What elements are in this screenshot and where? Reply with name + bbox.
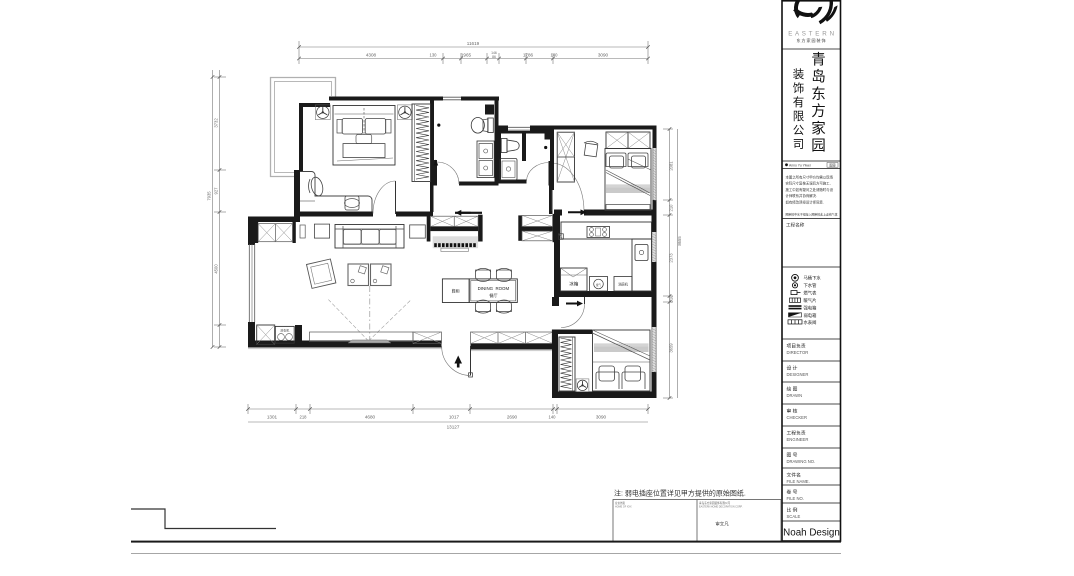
- svg-text:司: 司: [793, 139, 805, 151]
- svg-text:文件名: 文件名: [787, 472, 802, 479]
- svg-text:业主姓名: 业主姓名: [615, 501, 626, 505]
- svg-text:本图之所有尺寸甲方均需以现场: 本图之所有尺寸甲方均需以现场: [786, 175, 834, 180]
- svg-text:EASTERN HOME DECORATION CORP.: EASTERN HOME DECORATION CORP.: [699, 506, 743, 509]
- svg-text:东: 东: [811, 86, 826, 103]
- svg-text:11619: 11619: [467, 41, 480, 46]
- svg-text:140: 140: [549, 414, 557, 419]
- svg-text:DESIGNER: DESIGNER: [787, 372, 809, 377]
- svg-text:限: 限: [793, 110, 805, 123]
- svg-text:2690: 2690: [507, 414, 518, 419]
- svg-text:SCALE: SCALE: [787, 514, 801, 519]
- svg-text:青: 青: [811, 52, 826, 69]
- svg-text:装: 装: [793, 68, 805, 81]
- svg-text:13127: 13127: [447, 424, 460, 429]
- svg-text:DRAWN: DRAWN: [787, 393, 803, 398]
- svg-text:210: 210: [669, 204, 674, 212]
- svg-text:146: 146: [491, 51, 497, 55]
- svg-text:审 核: 审 核: [787, 408, 798, 415]
- svg-text:水表阀: 水表阀: [804, 319, 817, 326]
- svg-text:Anno Yu Yiwei: Anno Yu Yiwei: [789, 164, 811, 168]
- svg-text:1786: 1786: [523, 53, 534, 58]
- svg-text:东方家园装饰: 东方家园装饰: [797, 37, 827, 43]
- svg-text:2081: 2081: [669, 161, 674, 171]
- svg-text:公: 公: [793, 124, 805, 137]
- svg-text:图审: 图审: [829, 162, 835, 167]
- svg-text:927: 927: [214, 187, 219, 195]
- svg-text:家: 家: [811, 120, 826, 137]
- svg-text:青岛东方家园装饰有限公司: 青岛东方家园装饰有限公司: [699, 501, 731, 505]
- svg-text:洗衣机: 洗衣机: [280, 328, 289, 333]
- svg-text:方: 方: [811, 103, 826, 120]
- svg-text:冰箱: 冰箱: [569, 281, 579, 288]
- svg-text:CHECKER: CHECKER: [787, 415, 807, 420]
- svg-text:140: 140: [551, 53, 559, 58]
- svg-text:鞋柜: 鞋柜: [452, 288, 460, 294]
- svg-text:3090: 3090: [598, 53, 609, 58]
- svg-text:4500: 4500: [214, 264, 219, 274]
- svg-text:HOME OF XXX: HOME OF XXX: [615, 506, 632, 509]
- svg-text:如有修改须经设计师同意.: 如有修改须经设计师同意.: [786, 199, 824, 204]
- svg-text:比 例: 比 例: [787, 507, 798, 514]
- svg-text:130: 130: [430, 53, 438, 58]
- svg-text:DIRECTOR: DIRECTOR: [787, 350, 809, 355]
- svg-text:洗碗机: 洗碗机: [618, 282, 628, 287]
- svg-text:E A S T E R N: E A S T E R N: [788, 31, 834, 38]
- svg-text:暖气片: 暖气片: [804, 297, 817, 304]
- svg-text:岛: 岛: [811, 69, 826, 86]
- svg-text:1017: 1017: [449, 414, 460, 419]
- svg-text:饰: 饰: [793, 81, 805, 95]
- svg-text:3090: 3090: [596, 414, 607, 419]
- svg-text:7935: 7935: [206, 191, 211, 201]
- svg-text:计师联系并协商解决.: 计师联系并协商解决.: [786, 193, 818, 198]
- svg-text:218: 218: [300, 414, 308, 419]
- svg-text:下水管: 下水管: [804, 282, 818, 289]
- svg-text:注: 弱电插座位置详见甲方提供的原始图纸.: 注: 弱电插座位置详见甲方提供的原始图纸.: [614, 489, 746, 498]
- svg-text:强电箱: 强电箱: [804, 304, 818, 311]
- svg-text:86: 86: [492, 55, 496, 59]
- svg-text:1301: 1301: [267, 414, 278, 419]
- svg-text:煤气: 煤气: [596, 283, 602, 287]
- svg-text:卷 号: 卷 号: [787, 489, 798, 496]
- svg-text:工程负责: 工程负责: [787, 430, 806, 437]
- svg-text:弱电箱: 弱电箱: [804, 312, 818, 319]
- svg-text:有: 有: [793, 95, 805, 109]
- svg-text:4680: 4680: [365, 414, 376, 419]
- svg-text:810: 810: [669, 295, 674, 303]
- svg-text:园: 园: [811, 139, 826, 155]
- svg-text:ENGINEER: ENGINEER: [787, 437, 809, 442]
- svg-text:餐厅: 餐厅: [489, 292, 497, 299]
- svg-text:设 计: 设 计: [787, 365, 798, 372]
- svg-text:4308: 4308: [366, 53, 377, 58]
- svg-text:审文凡: 审文凡: [715, 521, 729, 528]
- svg-text:施工中如有疑问之处请随时与设: 施工中如有疑问之处请随时与设: [786, 187, 834, 192]
- svg-text:2373: 2373: [669, 253, 674, 263]
- svg-text:Noah Design: Noah Design: [783, 528, 840, 539]
- svg-text:3732: 3732: [214, 118, 219, 128]
- svg-text:DINING ROOM: DINING ROOM: [478, 286, 510, 291]
- svg-text:图 号: 图 号: [787, 453, 798, 459]
- svg-text:DRAWING NO.: DRAWING NO.: [787, 459, 816, 464]
- svg-text:FILE NO.: FILE NO.: [787, 496, 804, 501]
- svg-text:燃气表: 燃气表: [804, 290, 818, 297]
- svg-text:项目负责: 项目负责: [787, 343, 806, 350]
- svg-text:FILE NAME.: FILE NAME.: [787, 479, 810, 484]
- svg-text:绘 图: 绘 图: [787, 386, 798, 393]
- svg-text:图审核中水不得接入图审核此上虚线气体: 图审核中水不得接入图审核此上虚线气体: [786, 212, 838, 217]
- svg-text:马桶下水: 马桶下水: [804, 275, 822, 282]
- svg-text:3659: 3659: [669, 343, 674, 353]
- svg-text:实际尺寸复核无误后方可施工,: 实际尺寸复核无误后方可施工,: [786, 181, 831, 186]
- svg-text:8655: 8655: [677, 236, 682, 246]
- svg-text:工程名称: 工程名称: [786, 222, 805, 229]
- svg-text:1965: 1965: [461, 53, 472, 58]
